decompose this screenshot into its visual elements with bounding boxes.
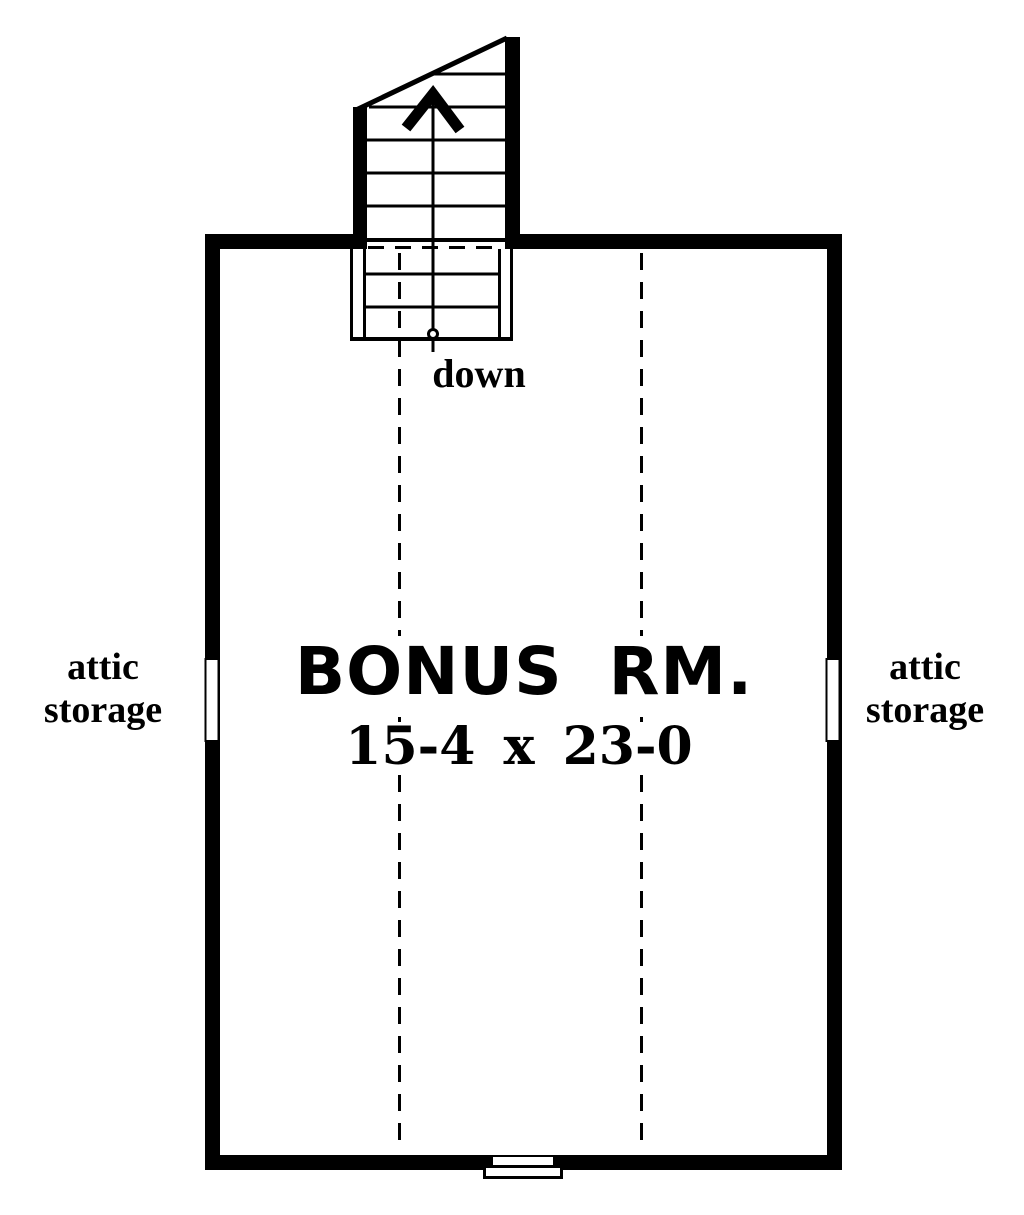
stairwell-wall-left [353, 107, 367, 249]
bottom-vent-inner [493, 1157, 553, 1166]
stairs-down-label: down [432, 354, 525, 394]
attic-storage-right-line2: storage [866, 689, 984, 732]
attic-storage-label-right: attic storage [866, 646, 984, 732]
room-dimensions: 15-4 x 23-0 [335, 722, 702, 772]
floor-plan-linework [0, 0, 1024, 1215]
attic-access-opening-left [206, 659, 219, 741]
attic-storage-left-line1: attic [44, 646, 162, 689]
stair-start-dot [429, 330, 438, 339]
bottom-vent-outer [485, 1167, 562, 1178]
attic-access-opening-right [827, 659, 840, 741]
stairwell-wall-right [505, 37, 520, 249]
floor-plan: down BONUS RM. 15-4 x 23-0 attic storage… [0, 0, 1024, 1215]
attic-storage-label-left: attic storage [44, 646, 162, 732]
attic-storage-right-line1: attic [866, 646, 984, 689]
attic-storage-left-line2: storage [44, 689, 162, 732]
room-title: BONUS RM. [287, 636, 761, 708]
